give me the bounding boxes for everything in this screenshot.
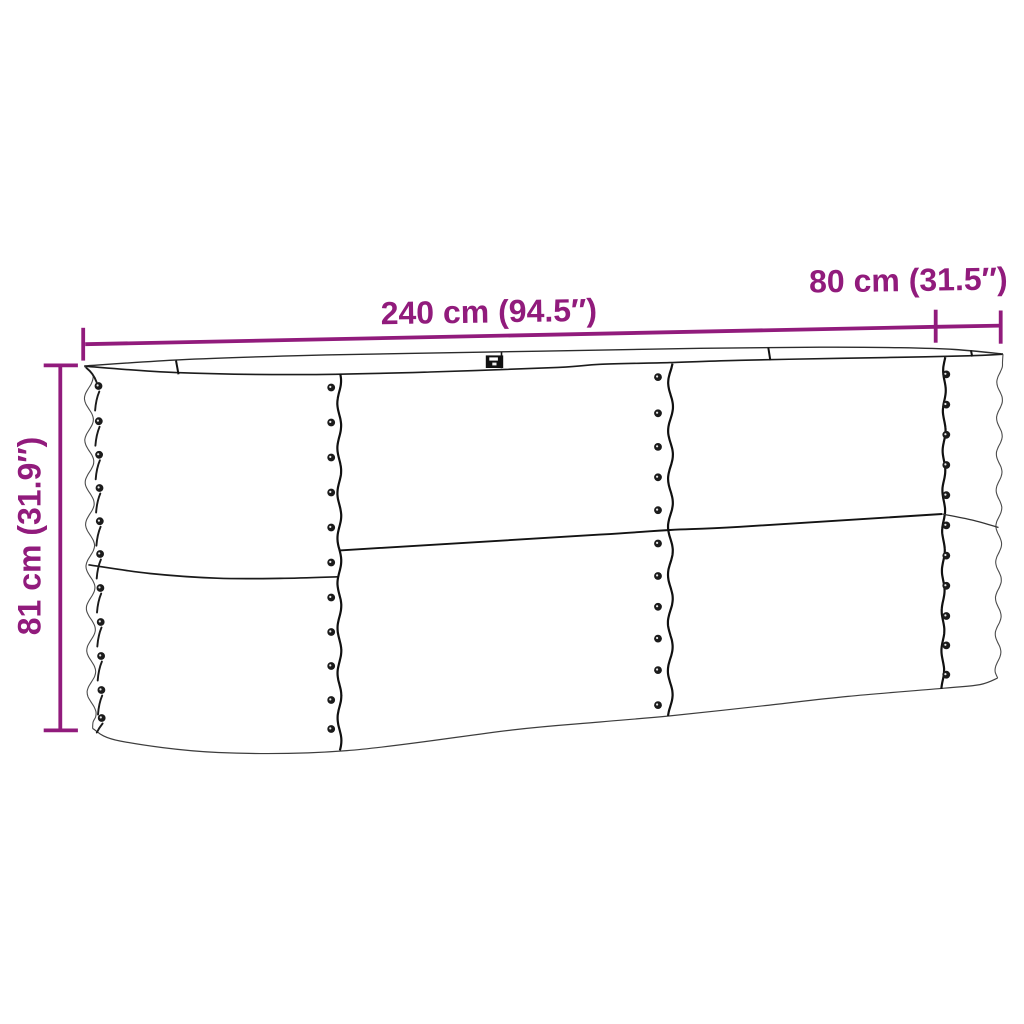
svg-text:80 cm (31.5″): 80 cm (31.5″) [809, 260, 1008, 299]
svg-text:81 cm (31.9″): 81 cm (31.9″) [12, 437, 48, 636]
svg-text:240 cm (94.5″): 240 cm (94.5″) [380, 292, 597, 331]
